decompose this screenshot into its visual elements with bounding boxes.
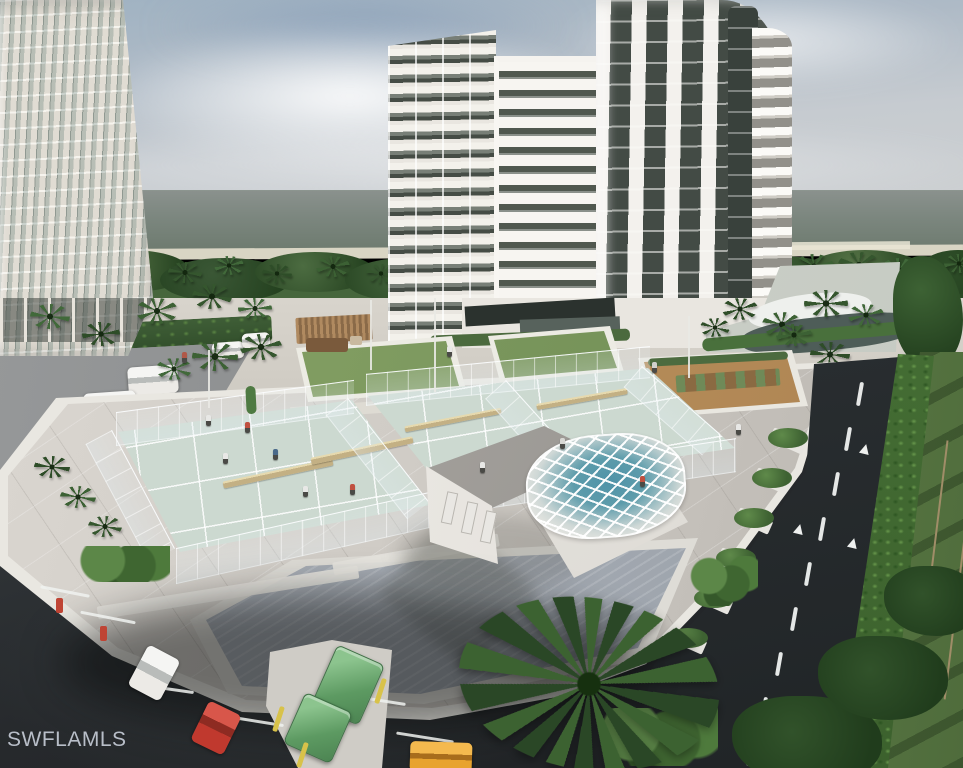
- person: [182, 352, 187, 363]
- person: [303, 486, 308, 497]
- person: [652, 362, 657, 373]
- person: [273, 449, 278, 460]
- person: [640, 476, 645, 487]
- mls-watermark: SWFLAMLS: [7, 728, 127, 752]
- person: [206, 415, 211, 426]
- person: [480, 462, 485, 473]
- person: [736, 424, 741, 435]
- aerial-rendering-photo: SWFLAMLS: [0, 0, 963, 768]
- person: [560, 438, 565, 449]
- person: [245, 422, 250, 433]
- person: [350, 484, 355, 495]
- person: [223, 453, 228, 464]
- person: [447, 346, 452, 357]
